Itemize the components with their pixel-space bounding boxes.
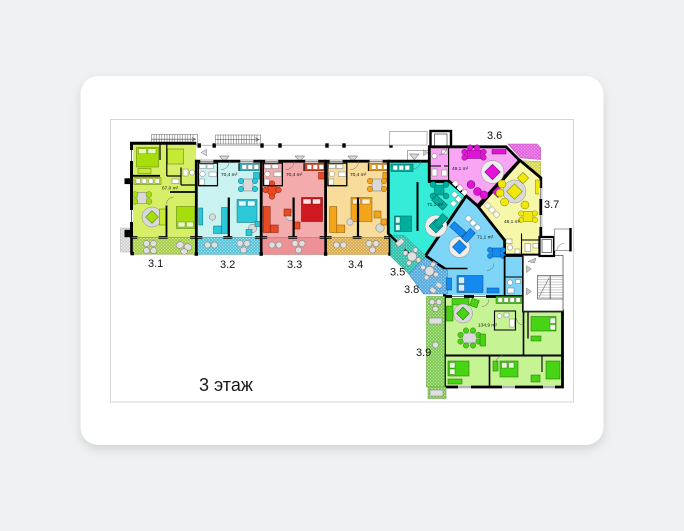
svg-text:49,1 m²: 49,1 m² [452, 166, 469, 172]
svg-text:3.2: 3.2 [220, 259, 235, 271]
svg-text:3.4: 3.4 [348, 259, 363, 271]
svg-text:134,9 m²: 134,9 m² [478, 323, 497, 329]
svg-text:70,4 m²: 70,4 m² [286, 172, 303, 178]
svg-text:3.5: 3.5 [390, 267, 405, 279]
svg-text:3.6: 3.6 [487, 130, 502, 142]
svg-text:3.3: 3.3 [287, 259, 302, 271]
svg-text:48,1 m²: 48,1 m² [504, 219, 521, 225]
svg-text:71,1 m²: 71,1 m² [477, 235, 494, 241]
svg-text:70,4 m²: 70,4 m² [221, 172, 238, 178]
svg-text:3 этаж: 3 этаж [199, 375, 253, 395]
svg-text:71,1 m²: 71,1 m² [427, 202, 444, 208]
svg-text:70,4 m²: 70,4 m² [350, 172, 367, 178]
svg-text:3.9: 3.9 [416, 347, 431, 359]
svg-text:67,0 m²: 67,0 m² [162, 186, 179, 192]
svg-text:3.1: 3.1 [148, 258, 163, 270]
svg-text:3.7: 3.7 [544, 199, 559, 211]
svg-text:3.8: 3.8 [404, 284, 419, 296]
